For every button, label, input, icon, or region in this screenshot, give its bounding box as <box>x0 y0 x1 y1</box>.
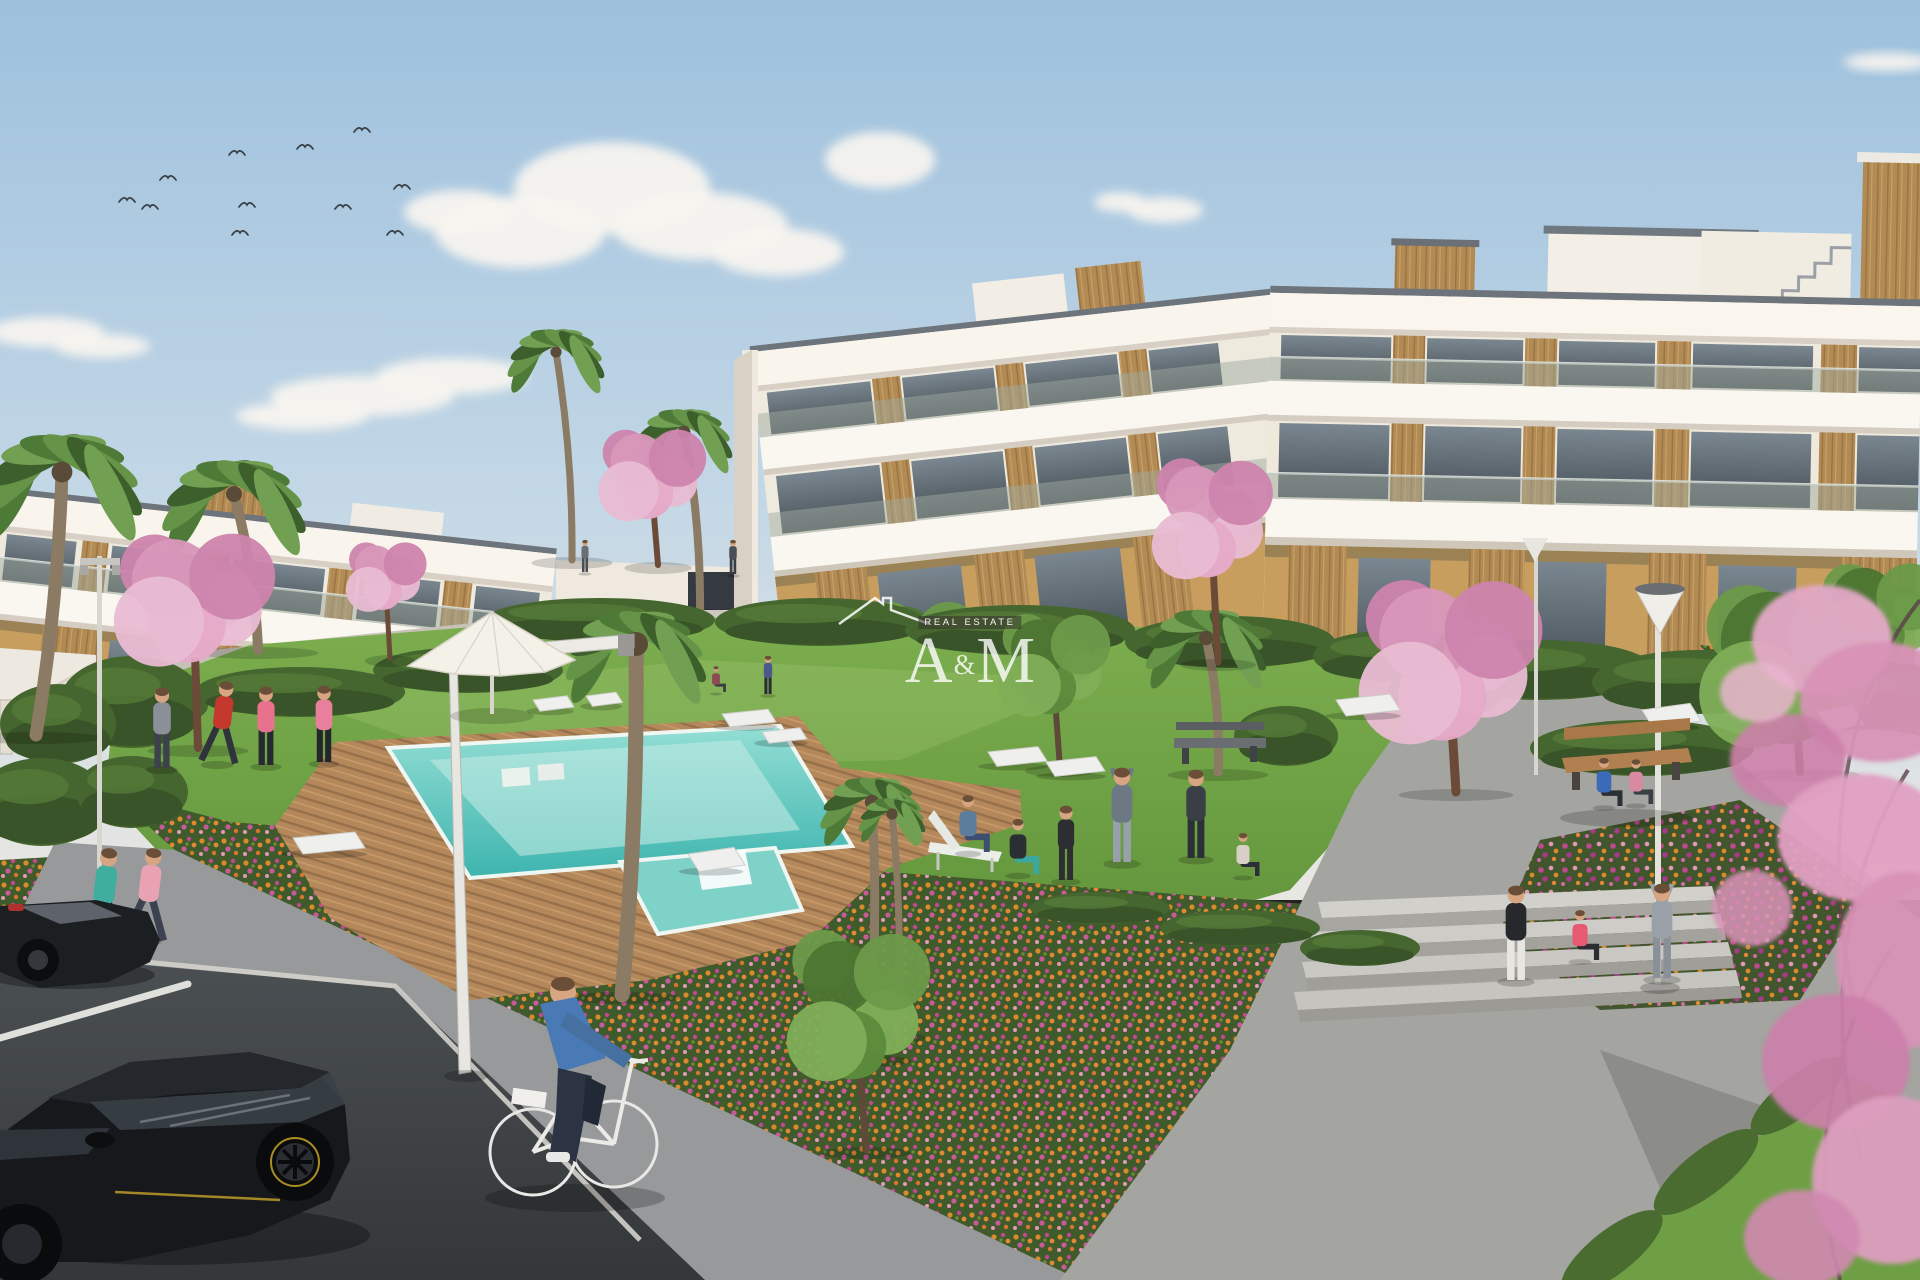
hedge <box>715 598 925 646</box>
render-canvas: REAL ESTATE A & M <box>0 0 1920 1280</box>
in-pool-lounger <box>501 767 530 787</box>
hedge <box>1030 892 1170 924</box>
car-sedan-partial <box>0 900 160 989</box>
hedge <box>1300 930 1420 966</box>
in-pool-lounger <box>537 763 564 781</box>
hedge <box>1234 706 1338 766</box>
scene <box>0 0 1920 1280</box>
hedge <box>1160 910 1320 946</box>
